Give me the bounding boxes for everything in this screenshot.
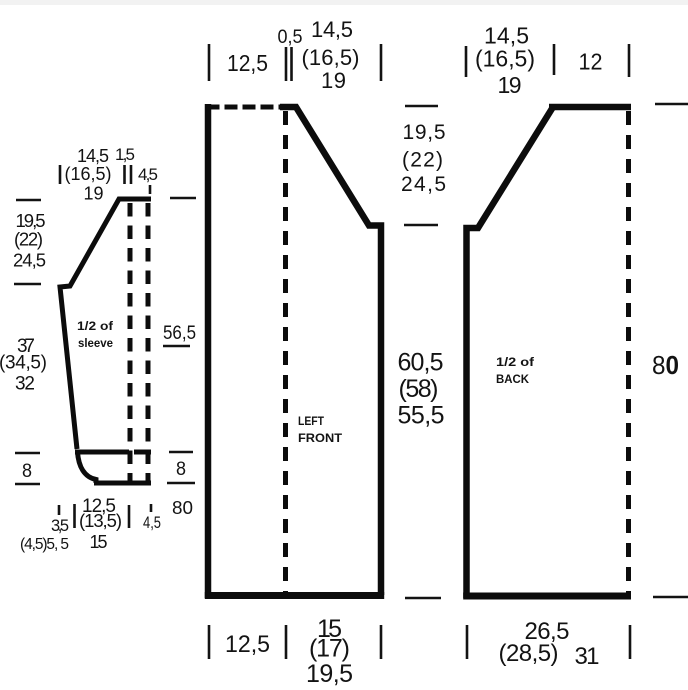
svg-text:(22): (22) xyxy=(402,149,443,172)
svg-text:(16,5): (16,5) xyxy=(475,46,535,72)
svg-text:24,5: 24,5 xyxy=(401,173,446,196)
svg-text:19: 19 xyxy=(321,68,346,93)
svg-text:32: 32 xyxy=(15,374,35,395)
svg-text:0,5: 0,5 xyxy=(278,27,303,48)
svg-text:1/2 of: 1/2 of xyxy=(77,319,114,333)
svg-text:(4,5)5, 5: (4,5)5, 5 xyxy=(20,536,69,553)
svg-text:8: 8 xyxy=(22,460,32,482)
svg-text:19: 19 xyxy=(84,184,104,204)
svg-text:12,5: 12,5 xyxy=(225,631,270,658)
svg-text:LEFT: LEFT xyxy=(298,414,325,428)
svg-text:FRONT: FRONT xyxy=(298,431,343,445)
svg-text:19,5: 19,5 xyxy=(306,660,353,688)
svg-text:19: 19 xyxy=(498,72,522,98)
svg-text:80: 80 xyxy=(652,350,679,380)
svg-text:15: 15 xyxy=(90,532,108,552)
svg-text:4,5: 4,5 xyxy=(143,514,161,532)
svg-text:14,5: 14,5 xyxy=(77,146,109,166)
svg-text:1,5: 1,5 xyxy=(115,145,135,164)
svg-text:1/2 of: 1/2 of xyxy=(496,355,535,369)
svg-text:14,5: 14,5 xyxy=(311,17,353,42)
svg-text:31: 31 xyxy=(575,643,600,670)
svg-text:12,5: 12,5 xyxy=(227,50,268,76)
svg-text:56,5: 56,5 xyxy=(163,323,196,344)
svg-text:8: 8 xyxy=(176,458,186,480)
svg-text:3,5: 3,5 xyxy=(51,517,69,535)
svg-text:(13,5): (13,5) xyxy=(79,510,122,531)
svg-text:55,5: 55,5 xyxy=(398,402,445,430)
svg-text:(17): (17) xyxy=(309,635,350,663)
svg-text:BACK: BACK xyxy=(496,372,529,386)
svg-text:(16,5): (16,5) xyxy=(65,164,112,184)
svg-text:sleeve: sleeve xyxy=(78,336,113,350)
svg-text:24,5: 24,5 xyxy=(13,250,46,271)
svg-text:12: 12 xyxy=(579,49,603,75)
svg-text:(58): (58) xyxy=(399,375,439,403)
svg-text:19,5: 19,5 xyxy=(403,121,446,144)
svg-text:80: 80 xyxy=(172,497,193,518)
svg-text:(34,5): (34,5) xyxy=(0,353,47,374)
svg-text:(28,5): (28,5) xyxy=(499,640,559,667)
svg-text:4,5: 4,5 xyxy=(138,165,158,184)
svg-text:(22): (22) xyxy=(14,229,43,250)
svg-text:60,5: 60,5 xyxy=(398,349,444,377)
svg-text:(16,5): (16,5) xyxy=(302,45,360,70)
